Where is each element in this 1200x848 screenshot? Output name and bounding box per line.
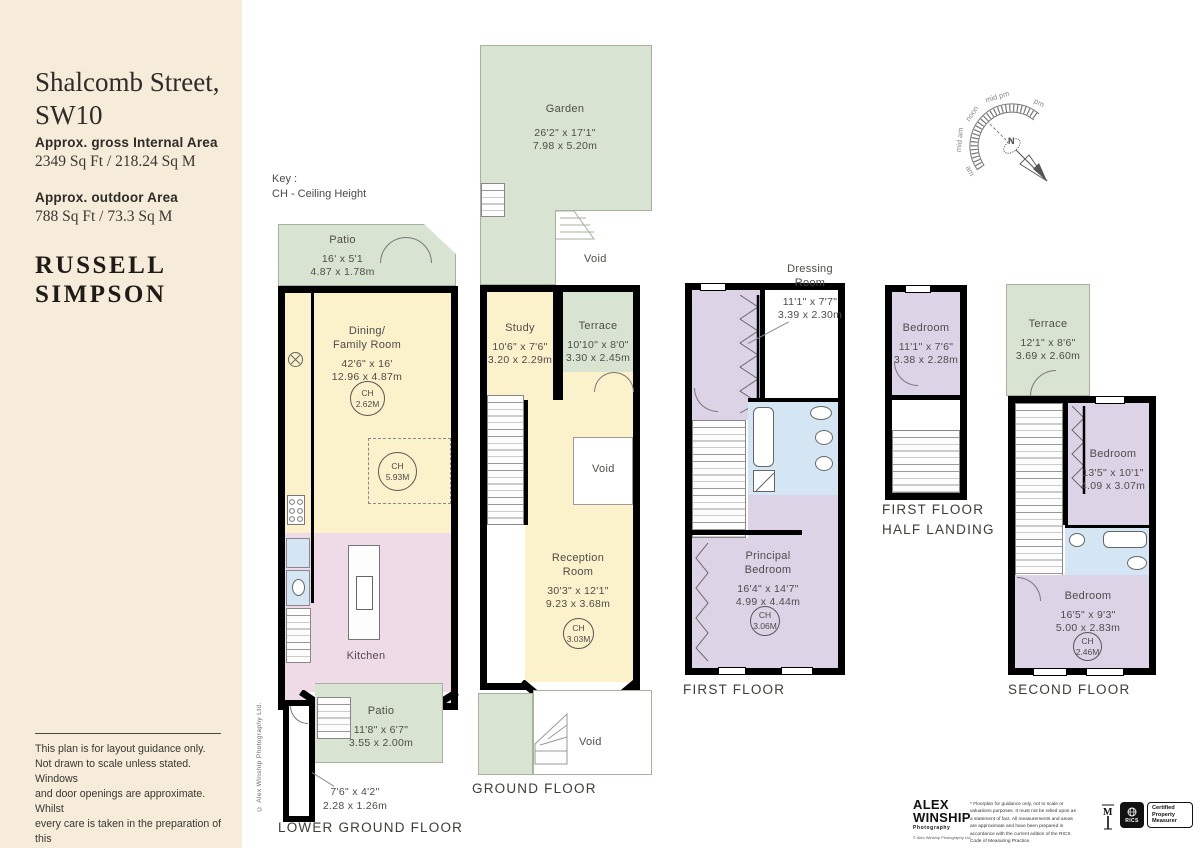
room-label: Bedroom 16'5" x 9'3" 5.00 x 2.83m [1050,590,1126,636]
compass-label-mid-am: mid am [954,127,965,152]
shower-diagonal [754,471,776,493]
interior-wall [524,400,528,525]
floor-title: FIRST FLOOR [683,682,785,697]
floorplan-page: Shalcomb Street, SW10 Approx. gross Inte… [0,0,1200,848]
front-garden [478,693,533,775]
toilet-icon [292,579,305,596]
globe-icon [1127,807,1137,817]
internal-area-label: Approx. gross Internal Area [35,135,218,150]
room-label: Patio 11'8" x 6'7" 3.55 x 2.00m [322,705,440,751]
entry-steps [534,709,569,769]
room-label: Dining/ Family Room 42'6" x 16' 12.96 x … [293,325,441,385]
window [1086,668,1124,676]
garden-stair-corner [556,211,596,243]
garden-steps [481,183,505,217]
divider [35,733,221,734]
room-label: 7'6" x 4'2" 2.28 x 1.26m [300,786,410,813]
outdoor-area-label: Approx. outdoor Area [35,190,178,205]
compass: N am mid am noon mid pm pm [950,78,1080,208]
room-label: Terrace 12'1" x 8'6" 3.69 x 2.60m [1006,318,1090,364]
hl-stairs [892,430,960,493]
page-title: Shalcomb Street, SW10 [35,66,219,132]
room-label: Patio 16' x 5'1 4.87 x 1.78m [290,234,395,280]
sf-stairs [1015,403,1063,593]
interior-wall [1063,403,1068,525]
compass-label-pm: pm [1032,96,1045,109]
sink-unit [286,538,310,568]
window [718,667,746,675]
compass-label-noon: noon [963,104,980,123]
internal-area-value: 2349 Sq Ft / 218.24 Sq M [35,153,218,171]
disclaimer-text: This plan is for layout guidance only. N… [35,742,235,848]
window [700,283,726,291]
interior-wall [553,292,563,400]
toilet-icon [810,406,832,420]
void-box: Void [573,437,633,505]
floor-title: GROUND FLOOR [472,781,597,796]
floor-title: SECOND FLOOR [1008,682,1130,697]
floor-title: FIRST FLOOR HALF LANDING [882,500,995,539]
spacer [287,578,288,579]
measurer-monogram-icon: M [1100,803,1116,831]
leader-line [312,772,335,787]
sink-icon [815,456,833,471]
wc-unit [286,570,310,606]
room-label: Reception Room 30'3" x 12'1" 9.23 x 3.68… [520,552,636,612]
internal-area-block: Approx. gross Internal Area 2349 Sq Ft /… [35,135,218,171]
interior-wall [692,530,802,535]
ceiling-height-badge: CH2.62M [350,381,385,416]
photographer-logo: ALEX WINSHIP Photography © Alex Winship … [913,798,971,840]
brand-logo: RUSSELL SIMPSON [35,252,166,310]
room-label: Garden 26'2" x 17'1" 7.98 x 5.20m [505,103,625,154]
window [905,285,931,293]
room-label: Terrace 10'10" x 8'0" 3.30 x 2.45m [563,320,633,366]
ceiling-height-key: Key : CH - Ceiling Height [272,172,366,202]
interior-wall [1065,525,1149,528]
sink-icon [815,430,833,445]
room-label: Principal Bedroom 16'4" x 14'7" 4.99 x 4… [710,550,826,610]
outdoor-area-block: Approx. outdoor Area 788 Sq Ft / 73.3 Sq… [35,190,178,226]
window [781,667,813,675]
room-label: Bedroom 13'5" x 10'1" 4.09 x 3.07m [1078,448,1148,494]
bathtub [753,407,774,467]
bathtub [1103,531,1147,548]
room-label: Dressing Room 11'1" x 7'7" 3.39 x 2.30m [765,263,855,323]
interior-wall [748,398,838,402]
rics-badge: RICS [1120,802,1144,828]
interior-wall [892,395,960,400]
ceiling-height-badge: CH3.06M [750,606,780,636]
shower [753,470,775,492]
outdoor-area-value: 788 Sq Ft / 73.3 Sq M [35,208,178,226]
sidebar: Shalcomb Street, SW10 Approx. gross Inte… [0,0,242,848]
wardrobe-zigzag [738,295,760,415]
wardrobe-zigzag [694,543,710,663]
ceiling-height-badge: CH5.93M [378,452,417,491]
room-label: Kitchen [300,650,432,664]
kitchen-island [348,545,380,640]
certified-property-measurer-badge: Certified Property Measurer [1147,802,1193,828]
footer-smallprint: * Floorplan for guidance only, not to sc… [970,801,1076,846]
window [1033,668,1067,676]
stove-icon [287,495,305,525]
ceiling-height-badge: CH3.03M [563,618,594,649]
copyright-vertical: © Alex Winship Photography Ltd. [256,692,263,812]
island-sink [356,576,373,610]
void-area: Void [533,690,652,775]
floor-title: LOWER GROUND FLOOR [278,820,463,835]
toilet-icon [1127,556,1147,570]
sink-icon [1069,533,1085,547]
window [1095,396,1125,404]
void-cut: Void [555,210,652,285]
room-label: Study 10'6" x 7'6" 3.20 x 2.29m [487,322,553,368]
needle-tip [1033,163,1047,181]
gf-stairs [487,395,524,525]
ceiling-height-badge: CH2.46M [1073,632,1102,661]
ff-stairs [692,420,746,538]
north-label: N [1008,136,1015,146]
compass-label-mid-pm: mid pm [984,89,1010,105]
